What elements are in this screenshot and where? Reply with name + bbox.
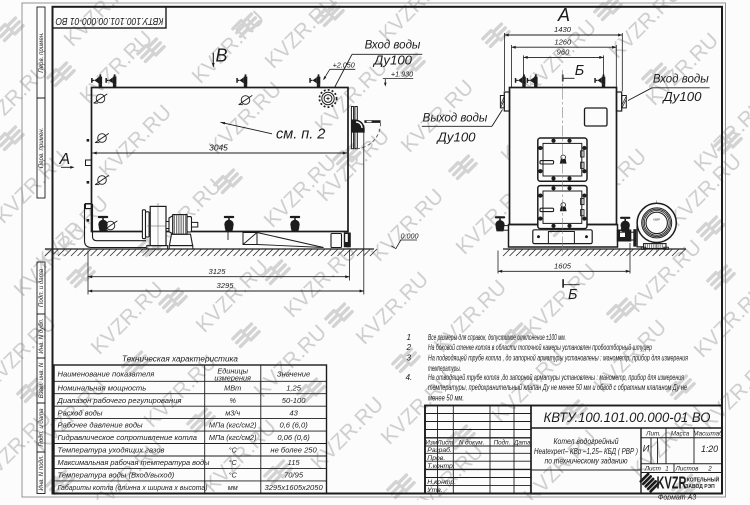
svg-text:Вход воды: Вход воды [653,73,709,85]
svg-text:Н.контр.: Н.контр. [427,479,456,486]
svg-text:50-100: 50-100 [282,396,306,405]
svg-text:Лит.: Лит. [645,431,661,438]
svg-text:И: И [643,444,650,455]
svg-text:1:20: 1:20 [701,444,718,454]
svg-text:МВт: МВт [224,383,241,392]
svg-text:МПа (кгс/см2): МПа (кгс/см2) [209,421,257,430]
svg-text:2: 2 [406,343,412,352]
svg-text:KVZR: KVZR [657,472,687,492]
svg-text:3295: 3295 [217,281,235,290]
svg-text:°С: °С [229,471,238,480]
svg-text:по техническому заданию: по техническому заданию [545,456,628,465]
svg-text:1430: 1430 [554,25,572,34]
svg-text:Б: Б [575,63,584,79]
svg-text:температуры.: температуры. [428,364,461,373]
svg-text:3045: 3045 [209,142,228,152]
svg-text:Формат А3: Формат А3 [658,495,696,501]
svg-text:Т.контр.: Т.контр. [427,463,455,470]
svg-text:А: А [557,5,570,25]
svg-text:4.: 4. [406,373,413,382]
svg-text:Дата: Дата [513,440,531,447]
svg-text:1: 1 [407,333,412,342]
svg-text:Перв. примен.: Перв. примен. [38,128,45,169]
svg-text:КВЗР: КВЗР [653,218,660,222]
svg-text:Масштаб: Масштаб [693,430,723,438]
svg-text:В: В [216,46,228,66]
svg-text:Наименование показателя: Наименование показателя [58,369,155,378]
svg-text:Ду100: Ду100 [372,52,413,67]
svg-text:м3/ч: м3/ч [225,408,240,417]
svg-text:Heatexpert– КВр –1,25– КБД ( Р: Heatexpert– КВр –1,25– КБД ( РВР ) [534,447,638,456]
svg-text:N докум.: N докум. [459,439,484,447]
svg-text:менее 50 мм.: менее 50 мм. [428,393,464,402]
svg-text:Вход воды: Вход воды [365,39,421,51]
svg-text:Перв. примен.: Перв. примен. [38,32,45,73]
svg-text:Разраб.: Разраб. [427,446,452,454]
svg-text:Утв.: Утв. [426,487,443,494]
svg-text:КВТУ.100.101.00.000-01 ВО: КВТУ.100.101.00.000-01 ВО [55,15,163,26]
svg-text:Диапазон рабочего регулировани: Диапазон рабочего регулирования [57,396,182,405]
svg-text:измерения: измерения [214,373,251,382]
svg-text:3125: 3125 [209,267,227,276]
svg-text:Температура уходящих газов: Температура уходящих газов [58,446,165,455]
svg-text:Выход воды: Выход воды [423,112,488,124]
svg-text:не более 250: не более 250 [270,446,317,455]
svg-text:Рабочее давление воды: Рабочее давление воды [58,421,144,430]
svg-text:Температура воды (Вход/выход): Температура воды (Вход/выход) [58,471,175,480]
svg-text:На боковой стенке котла в обла: На боковой стенке котла в области топочн… [428,343,652,352]
svg-text:+2.050: +2.050 [333,60,355,69]
svg-text:Лист: Лист [436,440,453,447]
svg-text:2: 2 [707,466,712,473]
svg-text:МПа (кгс/см2): МПа (кгс/см2) [209,433,257,442]
svg-text:температуры, предохранительный: температуры, предохранительный клапан Ду… [428,383,687,392]
svg-text:Расход воды: Расход воды [58,408,103,417]
svg-text:0,06 (0,6): 0,06 (0,6) [277,433,310,442]
svg-text:Гидравлическое сопротивление к: Гидравлическое сопротивление котла [58,433,198,442]
svg-text:Б: Б [568,287,577,303]
svg-text:Габариты котла (длинна х ширин: Габариты котла (длинна х ширина х высота… [58,483,208,492]
svg-text:мм: мм [228,483,238,492]
svg-text:°С: °С [229,458,238,467]
svg-text:Масса: Масса [671,431,690,438]
svg-text:960: 960 [557,48,570,57]
svg-text:КОТЕЛЬНЫЙ: КОТЕЛЬНЫЙ [687,475,720,483]
svg-text:Инв. N дубл.: Инв. N дубл. [38,318,45,353]
svg-text:3: 3 [407,354,412,363]
svg-text:Ду100: Ду100 [435,129,476,144]
svg-text:1,25: 1,25 [286,383,302,392]
svg-text:Инв. N подл.: Инв. N подл. [38,455,45,491]
svg-text:115: 115 [288,458,301,467]
svg-text:А: А [59,151,71,168]
svg-text:Значение: Значение [277,369,310,378]
svg-text:см. п. 2: см. п. 2 [276,127,325,143]
svg-text:°С: °С [229,446,238,455]
svg-text:На отводящей трубе котла ,до з: На отводящей трубе котла ,до запорной ар… [428,373,684,382]
svg-text:Котел водогрейный: Котел водогрейный [554,437,619,446]
svg-text:0.000: 0.000 [401,232,419,241]
svg-text:Все размеры для справок, допу: Все размеры для справок, допустимое откл… [428,333,566,342]
svg-text:Пров.: Пров. [427,455,445,462]
svg-text:70/95: 70/95 [284,471,304,480]
svg-text:+1.930: +1.930 [391,70,413,79]
svg-text:Изм: Изм [425,440,437,447]
svg-text:Максимальная рабочая температу: Максимальная рабочая температура воды [58,458,210,467]
svg-text:ЗАВОД РЭП: ЗАВОД РЭП [685,484,715,490]
svg-text:3295х1605х2050: 3295х1605х2050 [264,483,323,492]
svg-text:КВТУ.100.101.00.000-01 ВО: КВТУ.100.101.00.000-01 ВО [544,410,711,426]
svg-text:Подп. и дата: Подп. и дата [38,268,45,307]
svg-text:Подп. и дата: Подп. и дата [38,408,45,447]
svg-text:0,6 (6,0): 0,6 (6,0) [279,421,308,430]
svg-text:1605: 1605 [554,261,572,270]
svg-text:Подп.: Подп. [494,439,511,447]
svg-text:Взам. инв. N: Взам. инв. N [38,362,45,398]
svg-text:Ду100: Ду100 [661,89,702,104]
svg-text:На подводящей трубе котла ,: На подводящей трубе котла , до запорной … [428,354,688,363]
svg-text:Номинальная мощность: Номинальная мощность [58,383,147,392]
svg-text:Техническая характеристика: Техническая характеристика [122,354,238,363]
svg-text:1260: 1260 [554,37,572,46]
svg-text:43: 43 [289,408,298,417]
svg-text:%: % [229,396,236,405]
